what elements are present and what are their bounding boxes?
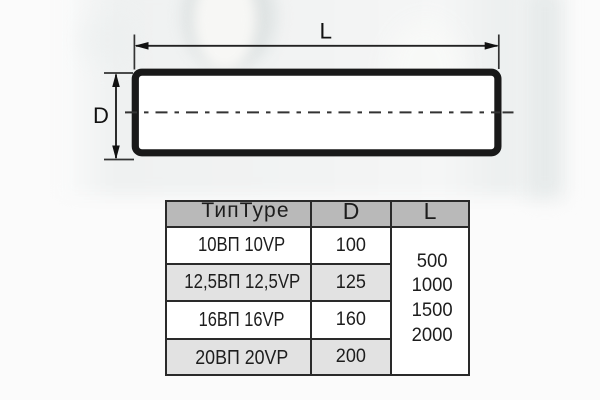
svg-text:D: D [93,103,109,128]
svg-text:L: L [320,18,333,43]
